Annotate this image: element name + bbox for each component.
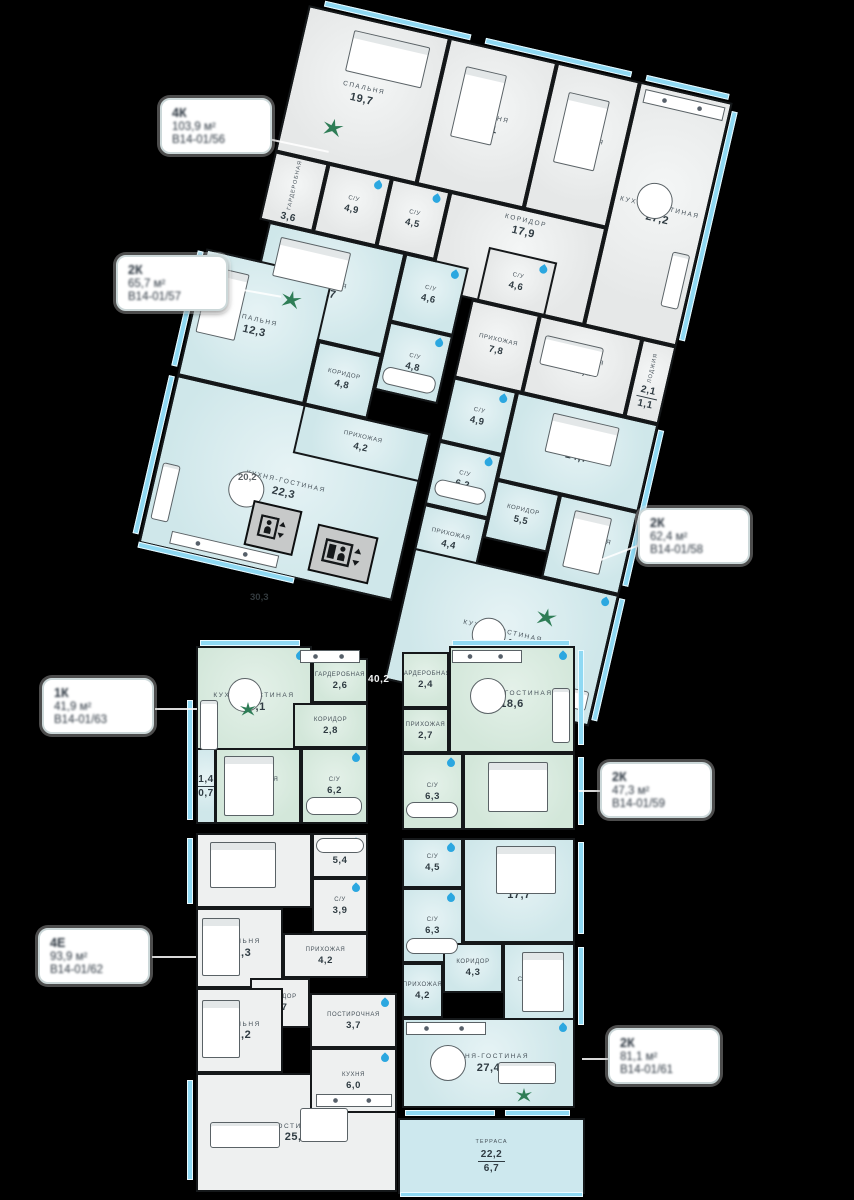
room-loggia[interactable]: 1,40,7 (196, 748, 216, 824)
water-drop-icon (483, 457, 494, 468)
sofa-icon (200, 700, 218, 750)
kitchen-counter-icon (406, 1022, 486, 1035)
callout-leader-line (152, 956, 196, 958)
dining-table-icon (430, 1045, 466, 1081)
apartment-callout[interactable]: 4Е 93,9 м² В14-01/62 (38, 928, 150, 984)
apartment-callout[interactable]: 1К 41,9 м² В14-01/63 (42, 678, 154, 734)
sofa-icon (552, 688, 570, 743)
terrace[interactable]: ТЕРРАСА22,26,7 (398, 1118, 585, 1194)
balcony-glazing (505, 1110, 570, 1116)
apartment-callout[interactable]: 2К 65,7 м² В14-01/57 (116, 255, 228, 311)
callout-leader-line (582, 1058, 610, 1060)
water-drop-icon (350, 752, 361, 763)
sofa-icon (210, 1122, 280, 1148)
bathtub-icon (406, 938, 458, 954)
balcony-glazing (187, 700, 193, 820)
water-drop-icon (600, 597, 611, 608)
bed-icon (202, 918, 240, 976)
core-area-label: 30,3 (250, 592, 269, 603)
apartment-callout[interactable]: 4К 103,9 м² В14-01/56 (160, 98, 272, 154)
balcony-glazing (400, 1192, 583, 1197)
balcony-glazing (187, 1080, 193, 1180)
water-drop-icon (379, 1052, 390, 1063)
kitchen-counter-icon (452, 650, 522, 663)
room-wardrobe[interactable]: ГАРДЕРОБНАЯ2,4 (402, 652, 449, 708)
kitchen-counter-icon (316, 1094, 392, 1107)
water-drop-icon (434, 338, 445, 349)
water-drop-icon (557, 650, 568, 661)
water-drop-icon (431, 193, 442, 204)
bathtub-icon (316, 838, 364, 853)
room-bathroom[interactable]: С/У4,8 (374, 321, 453, 404)
plant-icon (516, 1088, 536, 1108)
bed-icon (522, 952, 564, 1012)
bed-icon (210, 842, 276, 888)
balcony-glazing (200, 640, 300, 646)
room-hallway[interactable]: ПРИХОЖАЯ4,2 (283, 933, 368, 978)
balcony-glazing (452, 640, 570, 646)
bed-icon (224, 756, 274, 816)
bed-icon (202, 1000, 240, 1058)
kitchen-counter-icon (300, 650, 360, 663)
apartment-callout[interactable]: 2К 81,1 м² В14-01/61 (608, 1028, 720, 1084)
corridor-area-label: 40,2 (368, 674, 389, 685)
core-area-label: 20,2 (238, 472, 257, 483)
bed-icon (496, 846, 556, 894)
balcony-glazing (578, 650, 584, 745)
room-laundry[interactable]: ПОСТИРОЧНАЯ3,7 (310, 993, 397, 1048)
apartment-callout[interactable]: 2К 62,4 м² В14-01/58 (638, 508, 750, 564)
callout-leader-line (155, 708, 197, 710)
sofa-icon (498, 1062, 556, 1084)
room-hallway[interactable]: ПРИХОЖАЯ2,7 (402, 708, 449, 753)
bed-icon (488, 762, 548, 812)
room-hallway[interactable]: ПРИХОЖАЯ4,2 (402, 963, 443, 1018)
water-drop-icon (445, 842, 456, 853)
room-bathroom[interactable]: С/У6,3 (402, 753, 463, 830)
water-drop-icon (557, 1022, 568, 1033)
balcony-glazing (578, 947, 584, 1025)
water-drop-icon (445, 892, 456, 903)
floor-plan: СПАЛЬНЯ19,7 СПАЛЬНЯ14,1 СПАЛЬНЯ14,2 КУХН… (0, 0, 854, 1200)
room-bathroom[interactable]: С/У4,5 (402, 838, 463, 888)
water-drop-icon (498, 393, 509, 404)
room-bathroom[interactable]: С/У3,9 (312, 878, 368, 933)
apartment-callout[interactable]: 2К 47,3 м² В14-01/59 (600, 762, 712, 818)
balcony-glazing (578, 842, 584, 934)
balcony-glazing (405, 1110, 495, 1116)
water-drop-icon (373, 180, 384, 191)
water-drop-icon (449, 269, 460, 280)
bathtub-icon (306, 797, 362, 815)
room-wardrobe[interactable]: ГАРДЕРОБНАЯ2,6 (312, 658, 368, 703)
plant-icon (240, 702, 260, 722)
water-drop-icon (379, 997, 390, 1008)
balcony-glazing (187, 838, 193, 904)
room-corridor[interactable]: КОРИДОР2,8 (293, 703, 368, 748)
bathtub-icon (406, 802, 458, 818)
water-drop-icon (445, 757, 456, 768)
water-drop-icon (538, 264, 549, 275)
water-drop-icon (350, 882, 361, 893)
dining-table-icon (300, 1108, 348, 1142)
dining-table-icon (470, 678, 506, 714)
room-kitchen-living[interactable]: КУХНЯ-ГОСТИНАЯ22,3 (139, 375, 431, 601)
